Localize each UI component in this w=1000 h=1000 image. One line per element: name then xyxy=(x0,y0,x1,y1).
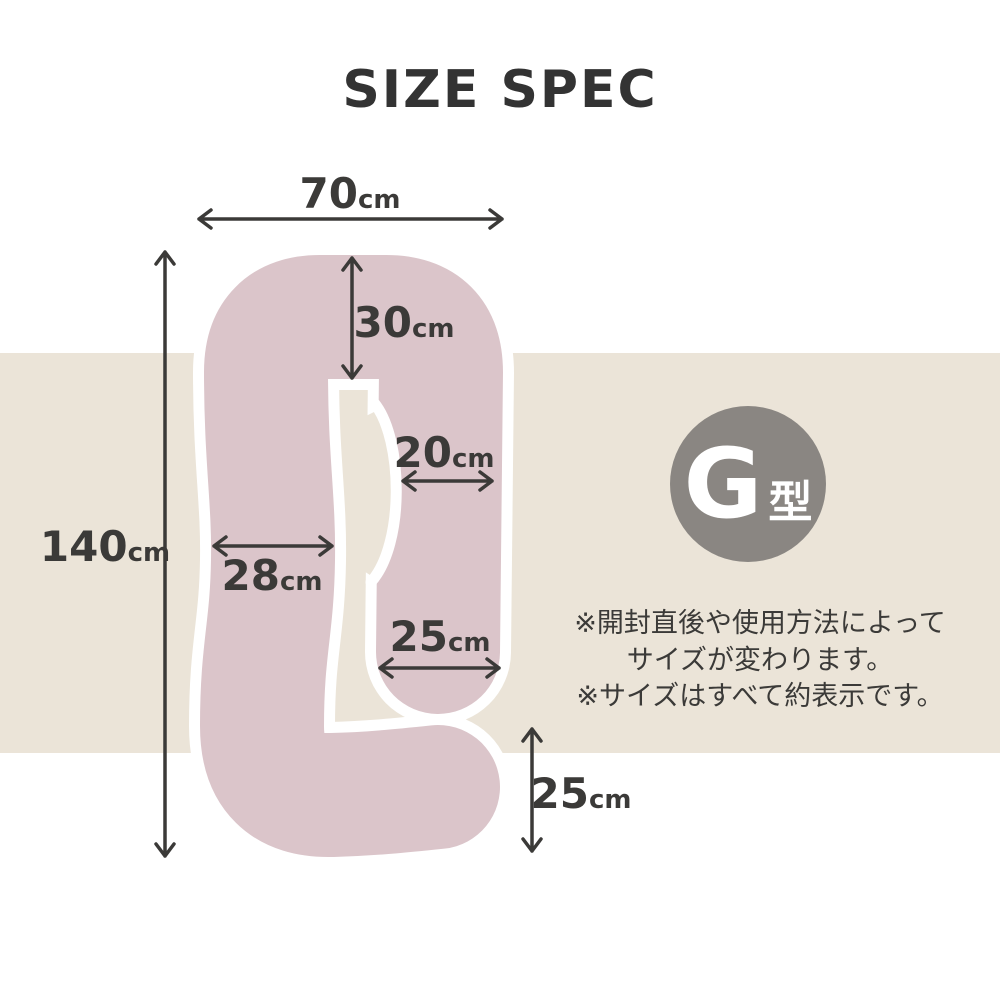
size-spec-infographic: SIZE SPEC 70cm 30cm 20cm 140cm 28cm 25cm… xyxy=(0,0,1000,1000)
note-line: ※サイズはすべて約表示です。 xyxy=(520,679,1000,716)
dimension-label-left-width: 28cm xyxy=(222,555,323,597)
size-notes: ※開封直後や使用方法によって サイズが変わります。 ※サイズはすべて約表示です。 xyxy=(520,606,1000,716)
dimension-label-arm-width: 20cm xyxy=(394,432,495,474)
shape-type-badge: G 型 xyxy=(670,406,826,562)
shape-type-suffix: 型 xyxy=(768,481,812,525)
note-line: ※開封直後や使用方法によって xyxy=(520,606,1000,643)
dimension-label-tail-height: 25cm xyxy=(531,773,632,815)
dimension-label-total-height: 140cm xyxy=(40,526,170,568)
dimension-label-total-width: 70cm xyxy=(300,173,401,215)
dimension-label-top-depth: 30cm xyxy=(354,302,455,344)
pillow-diagram xyxy=(0,0,1000,1000)
shape-type-letter: G xyxy=(684,436,763,532)
dimension-label-inner-width: 25cm xyxy=(390,616,491,658)
note-line: サイズが変わります。 xyxy=(520,643,1000,680)
